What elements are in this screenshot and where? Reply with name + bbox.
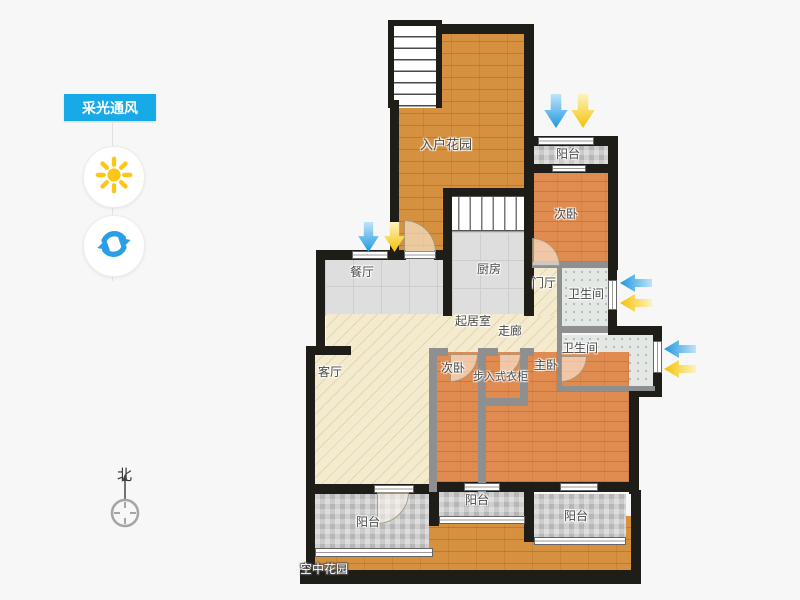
wall bbox=[300, 570, 641, 584]
wall bbox=[434, 250, 450, 260]
label-bedroom-top: 次卧 bbox=[554, 205, 578, 222]
label-corridor: 走廊 bbox=[498, 322, 522, 339]
wind-arrow-left-icon bbox=[620, 274, 652, 296]
stairs-kitchen bbox=[447, 196, 526, 231]
room-dining bbox=[325, 258, 444, 316]
window bbox=[315, 548, 433, 557]
label-master-bedroom: 主卧 bbox=[534, 356, 558, 373]
label-dining-room: 餐厅 bbox=[350, 263, 374, 280]
label-walk-in-closet: 步入式衣柜 bbox=[473, 368, 528, 384]
window bbox=[538, 137, 594, 145]
window bbox=[552, 165, 586, 172]
label-balcony-middle: 阳台 bbox=[465, 491, 489, 508]
lighting-ventilation-badge: 采光通风 bbox=[64, 94, 156, 121]
window bbox=[560, 483, 598, 491]
room-corridor bbox=[326, 314, 557, 352]
sunlight-button[interactable] bbox=[83, 146, 145, 208]
rotate-button[interactable] bbox=[83, 215, 145, 277]
wall bbox=[316, 250, 325, 354]
light-arrow-down-icon bbox=[384, 222, 405, 256]
north-compass-icon bbox=[100, 472, 150, 536]
wall bbox=[445, 188, 526, 196]
sun-icon bbox=[92, 153, 136, 201]
label-balcony-left: 阳台 bbox=[356, 513, 380, 530]
label-foyer: 门厅 bbox=[532, 274, 556, 291]
wind-arrow-down-icon bbox=[544, 94, 568, 132]
label-bedroom-2: 次卧 bbox=[441, 359, 465, 376]
light-arrow-left-icon bbox=[664, 360, 696, 382]
wall bbox=[608, 136, 618, 270]
door-sill bbox=[404, 251, 436, 259]
window bbox=[653, 341, 662, 373]
label-lounge: 客厅 bbox=[318, 363, 342, 380]
wall bbox=[306, 484, 315, 570]
wall bbox=[306, 346, 315, 493]
label-kitchen: 厨房 bbox=[477, 260, 501, 277]
window bbox=[439, 516, 525, 524]
stairs-top bbox=[388, 20, 442, 108]
label-balcony-top: 阳台 bbox=[556, 145, 580, 162]
wind-arrow-down-icon bbox=[358, 222, 379, 256]
window bbox=[608, 280, 617, 310]
wall bbox=[524, 482, 534, 542]
label-bathroom-2: 卫生间 bbox=[562, 339, 598, 356]
wind-arrow-left-icon bbox=[664, 340, 696, 362]
window bbox=[534, 537, 626, 545]
rotate-icon bbox=[94, 224, 134, 268]
window bbox=[464, 483, 500, 491]
wall bbox=[629, 388, 639, 494]
wall bbox=[631, 490, 641, 578]
label-balcony-right: 阳台 bbox=[564, 507, 588, 524]
wall bbox=[436, 24, 532, 34]
partition-wall bbox=[478, 398, 528, 406]
partition-wall bbox=[557, 386, 655, 391]
light-arrow-left-icon bbox=[620, 294, 652, 316]
label-living-room: 起居室 bbox=[455, 312, 491, 329]
light-arrow-down-icon bbox=[571, 94, 595, 132]
label-sky-garden: 空中花园 bbox=[300, 560, 348, 577]
partition-wall bbox=[557, 326, 608, 333]
partition-wall bbox=[429, 348, 437, 492]
label-entrance-garden: 入户花园 bbox=[420, 134, 472, 153]
label-bathroom-1: 卫生间 bbox=[568, 285, 604, 302]
